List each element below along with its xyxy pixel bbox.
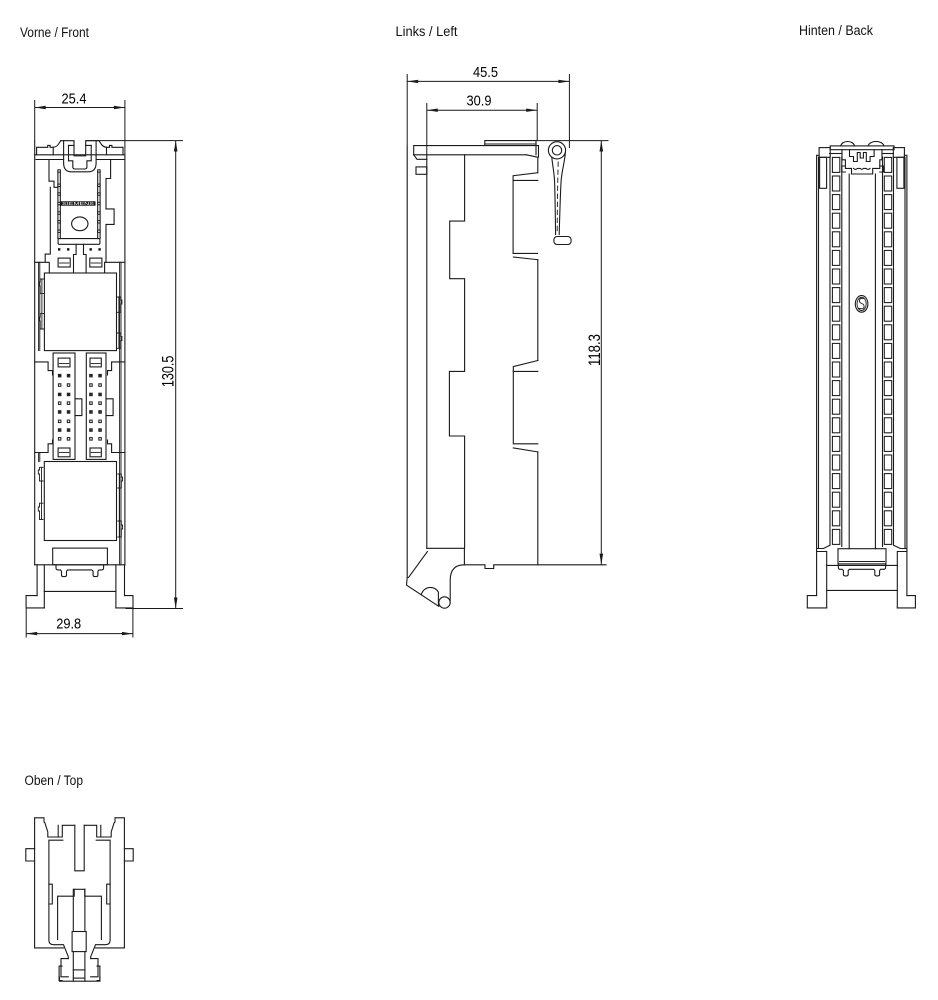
svg-text:130.5: 130.5 xyxy=(159,356,177,388)
svg-text:29.8: 29.8 xyxy=(56,616,81,633)
svg-text:SIEMENS: SIEMENS xyxy=(62,201,94,206)
svg-text:25.4: 25.4 xyxy=(62,91,87,108)
svg-text:30.9: 30.9 xyxy=(467,92,492,109)
svg-text:Oben / Top: Oben / Top xyxy=(25,773,84,788)
svg-text:Links / Left: Links / Left xyxy=(396,24,458,39)
svg-text:Hinten / Back: Hinten / Back xyxy=(799,23,873,38)
svg-text:45.5: 45.5 xyxy=(473,64,498,81)
svg-text:Vorne / Front: Vorne / Front xyxy=(20,25,89,40)
